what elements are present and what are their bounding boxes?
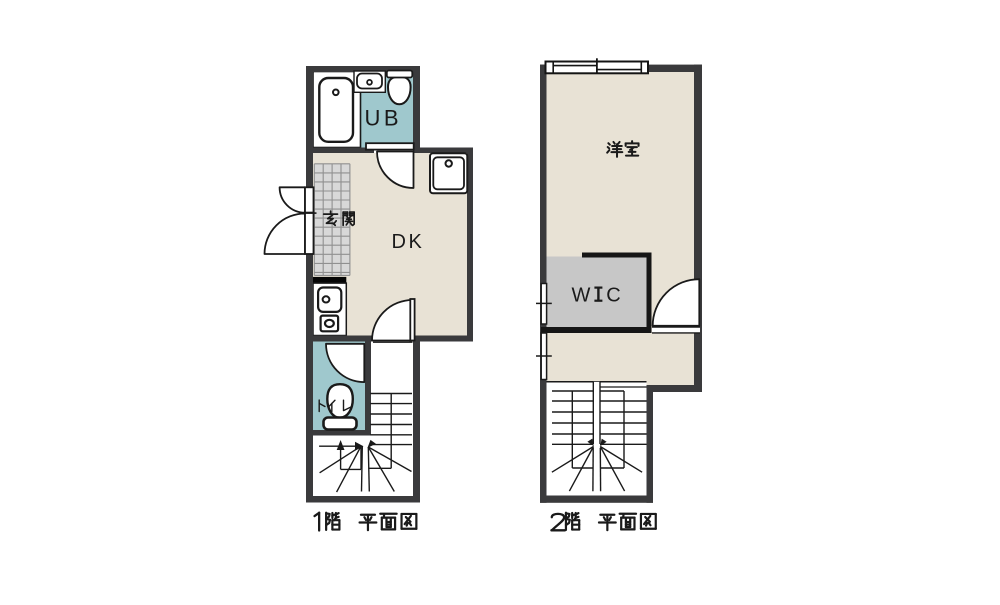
svg-text:C: C	[606, 285, 620, 307]
svg-text:UB: UB	[365, 106, 403, 131]
svg-text:DK: DK	[392, 231, 425, 253]
svg-text:W: W	[572, 285, 591, 307]
